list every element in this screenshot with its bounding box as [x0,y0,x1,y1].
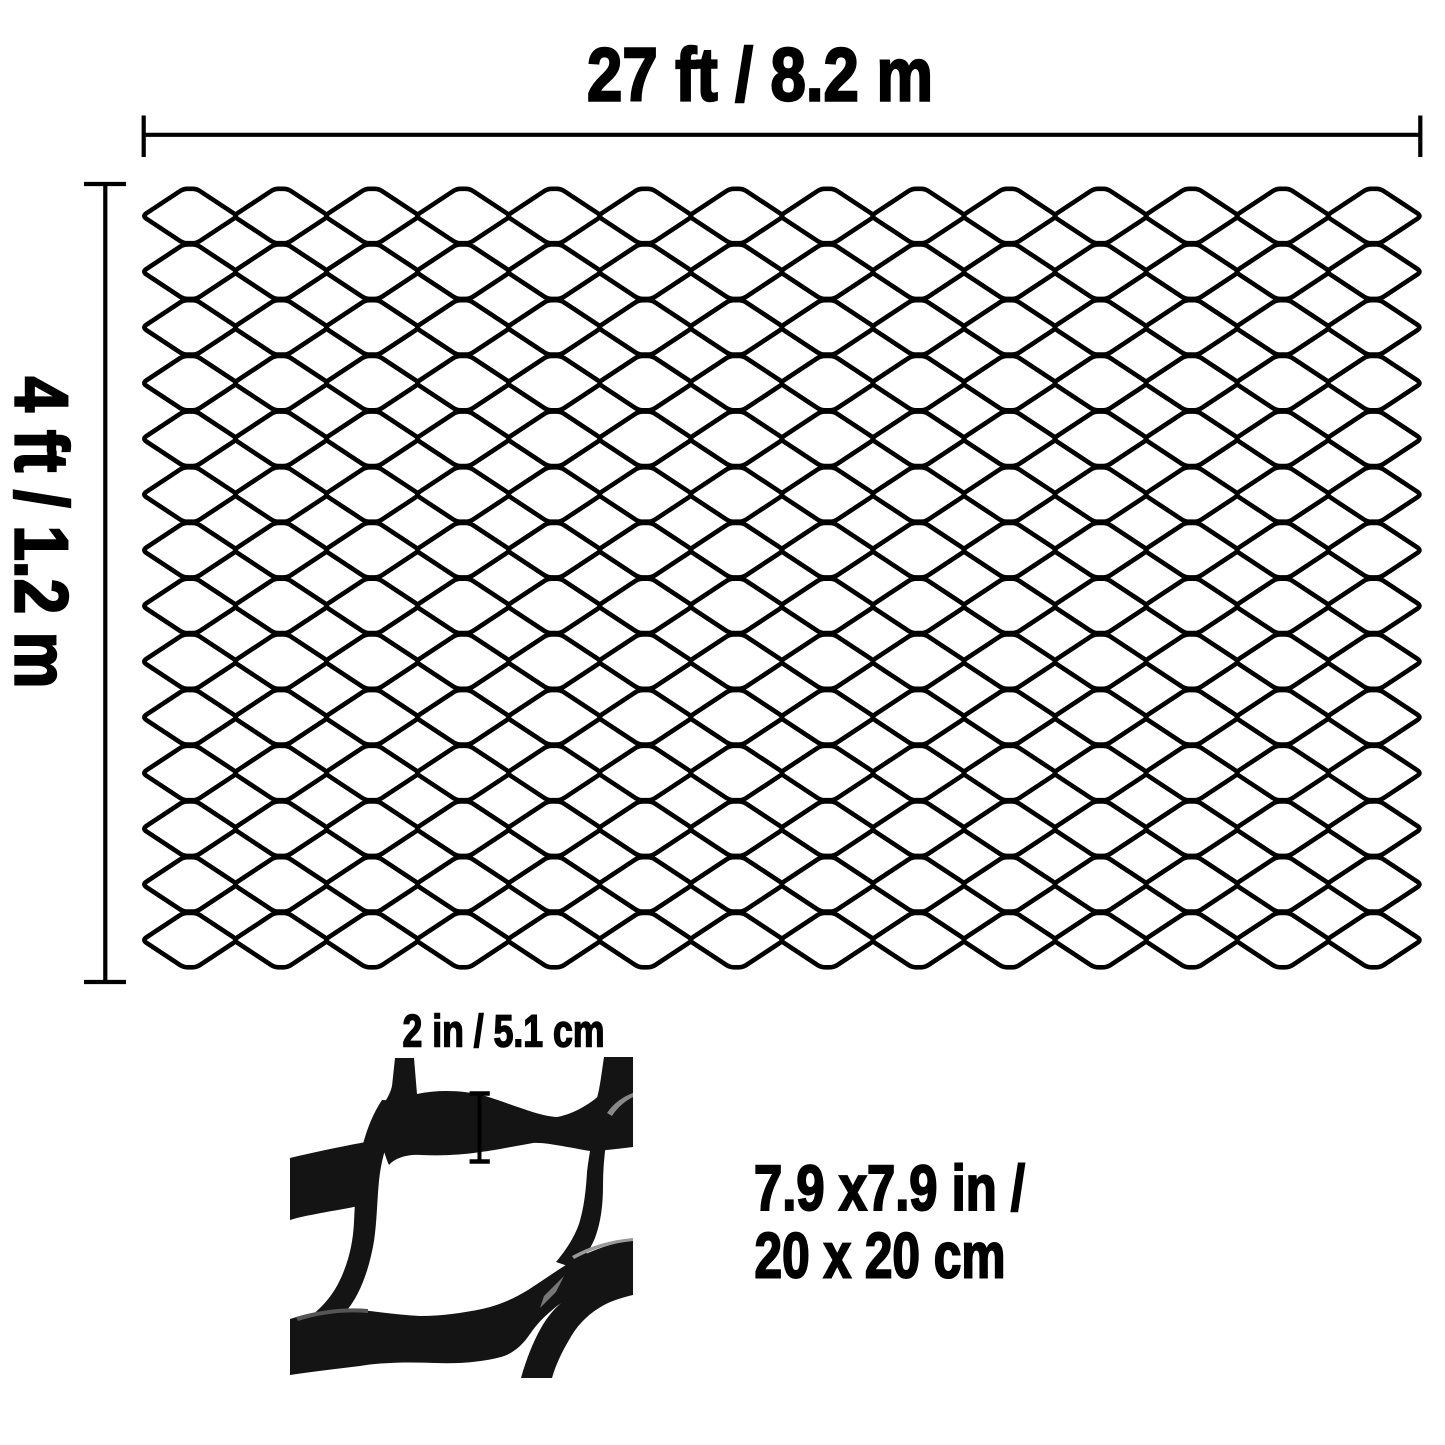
svg-text:27 ft / 8.2 m: 27 ft / 8.2 m [587,33,933,117]
svg-text:2 in / 5.1 cm: 2 in / 5.1 cm [403,1006,605,1057]
svg-text:7.9 x7.9 in /: 7.9 x7.9 in / [754,1152,1025,1224]
svg-text:20 x 20 cm: 20 x 20 cm [755,1220,1006,1292]
svg-text:4 ft / 1.2 m: 4 ft / 1.2 m [0,377,84,689]
